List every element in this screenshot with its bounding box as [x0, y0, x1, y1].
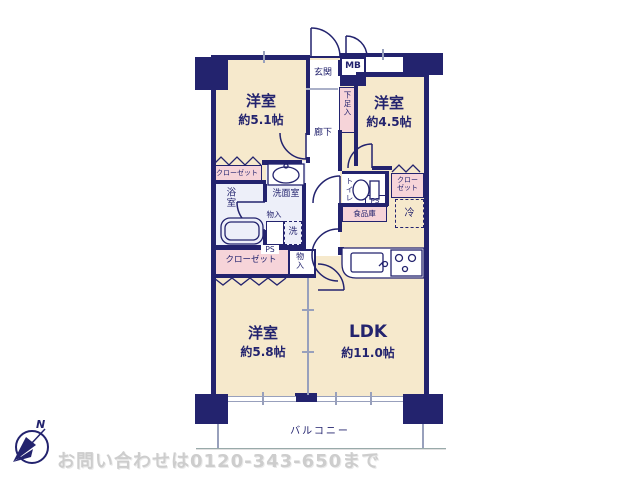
wall-segment [295, 393, 317, 402]
balcony-side-line [422, 424, 424, 449]
wall-segment [306, 157, 310, 163]
balcony-label: バルコニー [282, 426, 358, 438]
entry-step-line [306, 88, 338, 90]
compass-icon: N [13, 418, 48, 463]
washer-label: 洗 [284, 227, 302, 238]
contact-watermark: お問い合わせは0120-343-650まで [57, 447, 380, 473]
bathroom-label: 浴室 [224, 187, 235, 208]
wall-segment [340, 76, 366, 86]
partition-cross [307, 304, 309, 315]
window-tick [263, 51, 265, 63]
window [317, 396, 403, 402]
room-label-45: 洋室 約4.5帖 [356, 92, 422, 129]
genkan-label: 玄関 [308, 68, 338, 79]
washroom-label: 洗面室 [266, 189, 306, 200]
ps-right-label: PS [365, 197, 385, 205]
window-tick [262, 392, 264, 405]
room-label-51: 洋室 約5.1帖 [216, 90, 306, 127]
balcony-side-line [217, 424, 219, 449]
pillar [195, 57, 228, 90]
monoire-bottom-label: 物入 [295, 252, 305, 270]
wall-right [424, 55, 429, 400]
pillar [403, 394, 443, 424]
wall-segment [212, 274, 316, 278]
closet-right-label: クロー ゼット [391, 176, 424, 193]
wall-segment [338, 247, 344, 255]
monoire-small-box [266, 221, 284, 245]
toilet-label: トイレ [345, 177, 354, 203]
wall-segment [372, 166, 392, 170]
fridge-label: 冷 [395, 208, 424, 220]
window-tick [335, 392, 337, 405]
wall-segment [338, 130, 342, 171]
pantry-label: 食品庫 [342, 209, 387, 218]
wall-segment [342, 171, 388, 174]
closet-tl-label: クローゼット [212, 169, 262, 177]
compass-north-label: N [36, 418, 45, 431]
room-label-58: 洋室 約5.8帖 [218, 322, 308, 359]
wall-segment [211, 245, 306, 250]
ps-left-label: PS [261, 245, 279, 254]
wall-segment [262, 160, 302, 165]
wall-segment [212, 180, 266, 184]
wall-segment [310, 56, 340, 58]
wall-segment [385, 171, 389, 206]
mb-label: MB [340, 61, 366, 72]
floorplan: N 洋室 約5.1帖 洋室 約4.5帖 洋室 約5.8帖 LDK 約11.0帖 … [0, 0, 640, 480]
rouka-label: 廊下 [308, 128, 338, 139]
pillar [403, 54, 443, 75]
pillar [195, 394, 228, 424]
room-label-ldk: LDK 約11.0帖 [312, 320, 424, 360]
window-tick [382, 49, 384, 60]
monoire-wash-label: 物入 [260, 210, 288, 219]
window-tick [370, 392, 372, 405]
shoe-box-label: 下足入 [343, 91, 352, 117]
door-arc [311, 28, 340, 57]
closet-bl-label: クローゼット [212, 255, 290, 265]
